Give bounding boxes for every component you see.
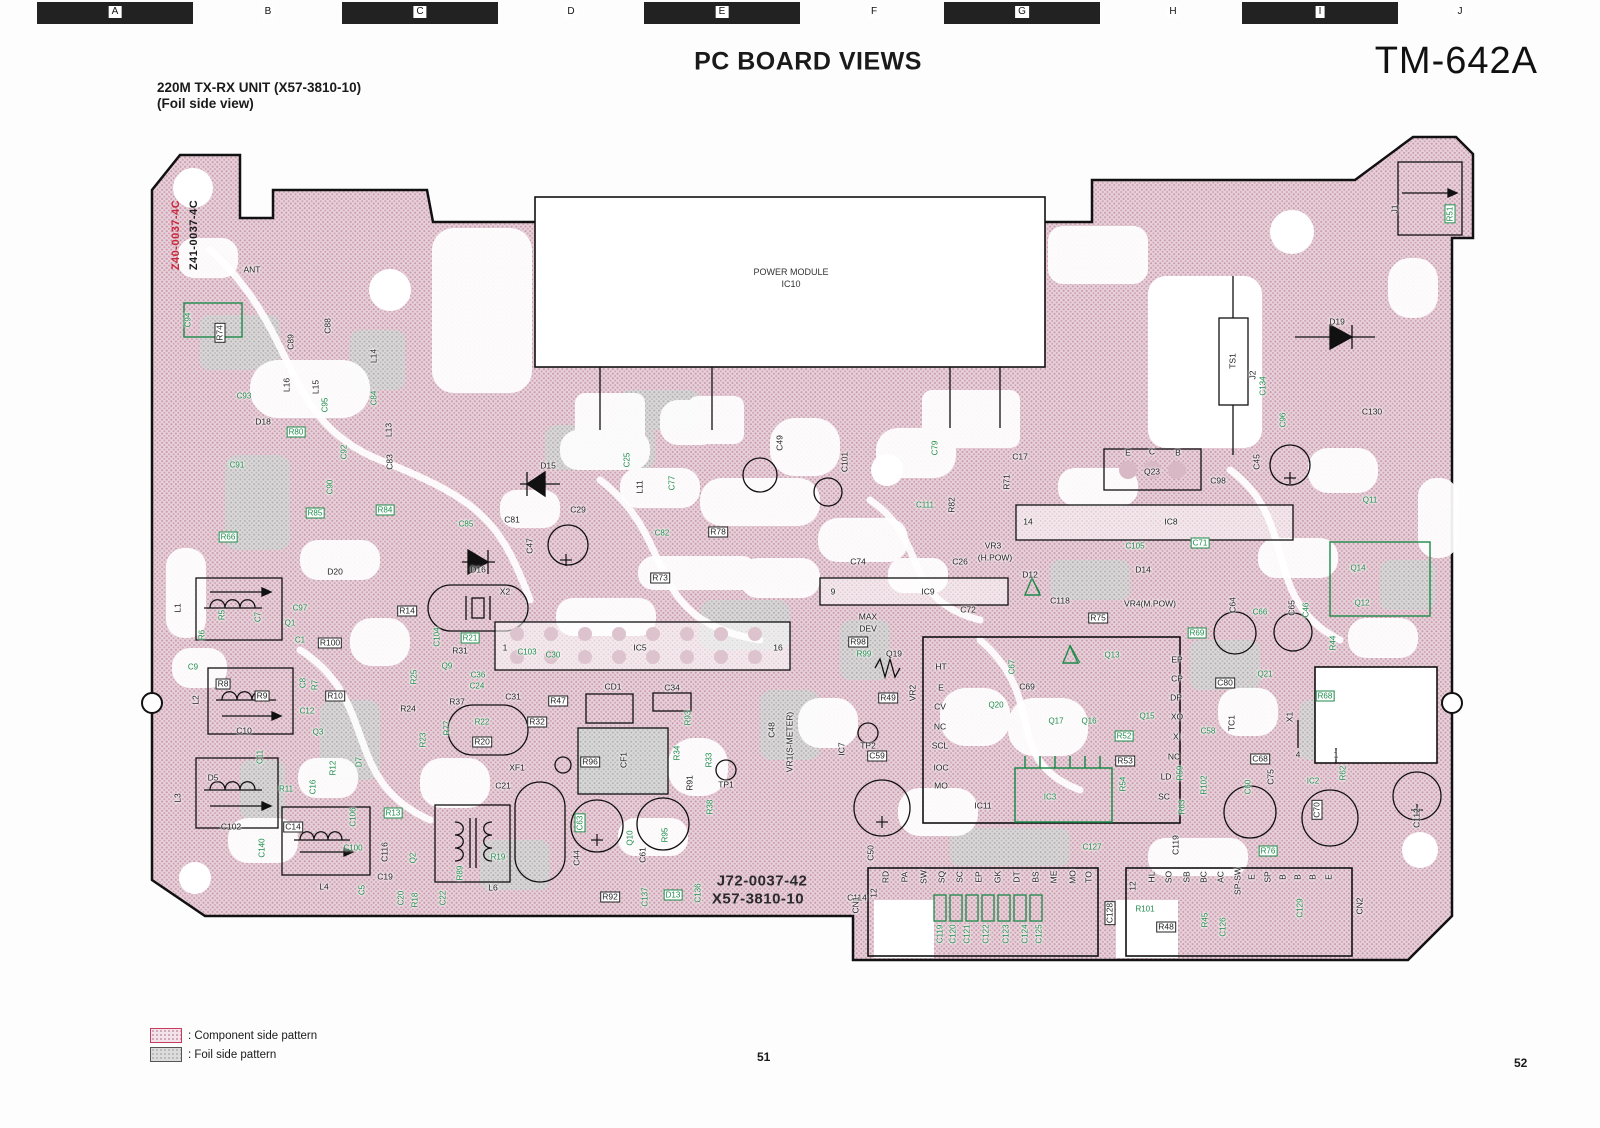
component-label: R14 xyxy=(397,606,417,617)
component-label: R11 xyxy=(279,785,293,794)
component-label: C67 xyxy=(1008,660,1017,675)
component-label: C1 xyxy=(295,636,305,645)
legend-component-side-label: : Component side pattern xyxy=(188,1030,317,1042)
component-label: IC11 xyxy=(974,802,991,811)
ts1-transformer xyxy=(1148,276,1262,455)
board-number-1: J72-0037-42 xyxy=(717,873,808,890)
page-number-right: 52 xyxy=(1514,1056,1527,1070)
component-label: XF1 xyxy=(509,764,525,773)
component-label: C88 xyxy=(324,318,333,334)
component-label: C65 xyxy=(1288,600,1297,616)
component-label: C74 xyxy=(850,558,866,567)
component-label: Q9 xyxy=(442,662,453,671)
component-label: C26 xyxy=(952,558,968,567)
component-label: R51 xyxy=(1445,205,1456,224)
component-label: 1 xyxy=(503,644,508,653)
component-label: C129 xyxy=(1296,898,1305,917)
component-label: R8 xyxy=(216,679,231,690)
component-label: J2 xyxy=(1249,371,1258,380)
legend: : Component side pattern : Foil side pat… xyxy=(150,1026,317,1064)
component-label: TC1 xyxy=(1228,715,1237,731)
component-label: C127 xyxy=(1082,843,1101,852)
component-label: C136 xyxy=(694,883,703,902)
component-label: 9 xyxy=(831,588,836,597)
component-label: IC8 xyxy=(1164,518,1177,527)
component-label: Q15 xyxy=(1139,712,1154,721)
component-label: C124 xyxy=(1021,924,1030,943)
component-label: 1 xyxy=(1334,751,1339,760)
component-label: R19 xyxy=(491,853,506,862)
component-label: C83 xyxy=(386,454,395,470)
component-label: R71 xyxy=(1003,474,1012,490)
component-label: SO xyxy=(1165,871,1174,883)
component-label: C25 xyxy=(623,453,632,468)
component-label: TP2 xyxy=(860,742,876,751)
component-label: CV xyxy=(934,703,946,712)
component-label: C19 xyxy=(377,873,393,882)
component-label: Q11 xyxy=(1363,496,1378,505)
component-label: NC xyxy=(1168,753,1180,762)
component-label: C36 xyxy=(471,671,486,680)
component-label: C16 xyxy=(309,780,318,795)
component-label: R45 xyxy=(1201,913,1210,928)
component-label: IOC xyxy=(933,764,948,773)
component-label: C24 xyxy=(470,682,485,691)
component-label: D19 xyxy=(1329,318,1345,327)
component-label: C75 xyxy=(1267,769,1276,785)
foil-side-pattern-swatch xyxy=(150,1047,182,1062)
component-label: B xyxy=(1309,874,1318,880)
component-label: PA xyxy=(901,872,910,883)
component-label: Q12 xyxy=(1354,599,1369,608)
component-label: R52 xyxy=(1115,731,1134,742)
component-label: R92 xyxy=(600,892,620,903)
component-label: C50 xyxy=(867,845,876,861)
component-label: C10 xyxy=(236,727,252,736)
component-label: B xyxy=(1175,449,1181,458)
component-label: R99 xyxy=(857,650,872,659)
component-label: D16 xyxy=(470,566,486,575)
component-label: R13 xyxy=(384,808,403,819)
component-label: C84 xyxy=(370,391,379,406)
component-label: R49 xyxy=(878,693,898,704)
component-label: 12 xyxy=(1129,881,1138,890)
component-label: R32 xyxy=(527,717,547,728)
component-label: R38 xyxy=(706,800,715,815)
component-label: ME xyxy=(1050,871,1059,884)
component-label: C89 xyxy=(287,334,296,350)
component-label: MO xyxy=(1069,870,1078,884)
component-label: C8 xyxy=(299,678,308,688)
component-label: C29 xyxy=(570,506,586,515)
power-module-ref: IC10 xyxy=(781,279,800,289)
component-label: CD1 xyxy=(604,683,621,692)
component-label: E xyxy=(1125,449,1131,458)
component-label: R25 xyxy=(410,670,419,685)
component-label: DEV xyxy=(859,625,876,634)
component-label: L14 xyxy=(370,349,379,363)
component-label: C134 xyxy=(1259,376,1268,395)
component-label: X1 xyxy=(1286,712,1295,722)
component-label: R54 xyxy=(1119,777,1128,792)
component-label: R48 xyxy=(1156,922,1176,933)
component-label: Q1 xyxy=(285,619,296,628)
component-label: X2 xyxy=(500,588,510,597)
component-label: C122 xyxy=(982,924,991,943)
component-label: C71 xyxy=(1191,538,1210,549)
component-label: C79 xyxy=(931,441,940,456)
component-label: CN1 xyxy=(852,896,861,913)
component-label: C97 xyxy=(293,604,308,613)
component-label: C45 xyxy=(1253,454,1262,470)
component-label: C12 xyxy=(300,707,315,716)
component-label: C112 xyxy=(1413,808,1422,828)
component-label: D12 xyxy=(1022,571,1038,580)
component-label: D7 xyxy=(355,757,364,767)
ic8 xyxy=(1016,505,1293,540)
component-label: Q13 xyxy=(1104,651,1119,660)
component-label: Q14 xyxy=(1350,564,1365,573)
component-label: R33 xyxy=(705,753,714,768)
component-label: C126 xyxy=(1219,917,1228,936)
component-label: 14 xyxy=(1023,518,1032,527)
ic2 xyxy=(1298,667,1437,763)
component-label: R68 xyxy=(1316,691,1335,702)
component-label: C9 xyxy=(188,663,198,672)
component-label: C58 xyxy=(1201,727,1216,736)
component-label: C49 xyxy=(776,435,785,451)
component-label: R76 xyxy=(1259,846,1278,857)
component-label: CP xyxy=(1171,675,1183,684)
component-label: C80 xyxy=(1215,678,1235,689)
component-label: R73 xyxy=(650,573,670,584)
component-label: L13 xyxy=(385,423,394,437)
component-side-pattern-swatch xyxy=(150,1028,182,1043)
component-label: C92 xyxy=(340,445,349,460)
component-label: C123 xyxy=(1002,924,1011,943)
component-label: C22 xyxy=(439,891,448,906)
component-label: R100 xyxy=(318,638,342,649)
component-label: E xyxy=(1325,874,1334,880)
component-label: D18 xyxy=(255,418,271,427)
component-label: C11 xyxy=(256,750,265,764)
component-label: C93 xyxy=(237,392,252,401)
component-label: L11 xyxy=(636,480,645,494)
component-label: R91 xyxy=(686,775,695,791)
component-label: C116 xyxy=(381,842,390,862)
component-label: R80 xyxy=(287,427,306,438)
component-label: E xyxy=(1248,874,1257,880)
component-label: C111 xyxy=(916,501,934,510)
component-label: R24 xyxy=(400,705,416,714)
component-label: D13 xyxy=(664,890,683,901)
component-label: SC xyxy=(956,871,965,883)
component-label: Q21 xyxy=(1257,670,1272,679)
component-label: Q10 xyxy=(626,830,635,845)
component-label: VR3 xyxy=(985,542,1002,551)
component-label: TS1 xyxy=(1229,353,1238,369)
component-label: Q17 xyxy=(1048,717,1063,726)
component-label: R22 xyxy=(475,718,490,727)
component-label: C118 xyxy=(1050,597,1070,606)
component-label: R96 xyxy=(580,757,600,768)
component-label: R66 xyxy=(219,532,238,543)
component-label: R7 xyxy=(311,680,320,690)
page: ABCDEFGHIJ 1234567 PC BOARD VIEWS TM-642… xyxy=(0,0,1600,1128)
component-label: SW xyxy=(920,870,929,884)
component-label: C119 xyxy=(936,925,945,944)
component-label: C125 xyxy=(1035,924,1044,943)
component-label: EP xyxy=(1171,656,1182,665)
component-label: R93 xyxy=(684,711,693,726)
component-label: C59 xyxy=(867,751,887,762)
component-label: R84 xyxy=(376,505,395,516)
component-label: B xyxy=(1294,874,1303,880)
component-label: C119 xyxy=(1172,835,1181,855)
component-label: MAX xyxy=(859,613,877,622)
component-label: Q3 xyxy=(313,728,324,737)
component-label: C34 xyxy=(664,684,680,693)
component-label: C63 xyxy=(575,814,586,833)
component-label: R95 xyxy=(661,828,670,843)
component-label: TO xyxy=(1085,871,1094,883)
component-label: IC5 xyxy=(633,644,646,653)
component-label: C82 xyxy=(655,529,670,538)
component-label: C100 xyxy=(343,844,362,853)
component-label: R44 xyxy=(1329,636,1338,651)
legend-component-side: : Component side pattern xyxy=(150,1026,317,1045)
component-label: R85 xyxy=(306,508,325,519)
component-label: R59 xyxy=(1176,766,1185,781)
component-label: BS xyxy=(1032,871,1041,882)
legend-foil-side: : Foil side pattern xyxy=(150,1045,317,1064)
component-label: C69 xyxy=(1019,683,1035,692)
component-label: L16 xyxy=(283,378,292,392)
ic9 xyxy=(820,578,1008,605)
component-label: B xyxy=(1279,874,1288,880)
component-label: C47 xyxy=(526,538,535,554)
component-label: R12 xyxy=(329,761,338,776)
component-label: C95 xyxy=(321,398,330,413)
page-number-left: 51 xyxy=(757,1050,770,1064)
component-label: L3 xyxy=(174,793,183,802)
component-label: R31 xyxy=(452,647,468,656)
component-label: C130 xyxy=(1362,408,1382,417)
component-label: R18 xyxy=(411,893,420,908)
component-label: RD xyxy=(882,871,891,883)
component-label: L15 xyxy=(312,380,321,394)
component-label: VR1(S-METER) xyxy=(786,712,795,772)
component-label: TP1 xyxy=(718,781,734,790)
component-label: C91 xyxy=(230,461,245,470)
component-label: VR4(M.POW) xyxy=(1124,600,1176,609)
component-label: IC7 xyxy=(838,742,847,755)
component-label: C31 xyxy=(505,693,521,702)
component-label: DT xyxy=(1013,871,1022,882)
component-label: C103 xyxy=(517,648,536,657)
component-label: R77 xyxy=(443,721,452,736)
component-label: XI xyxy=(1173,733,1181,742)
component-label: HT xyxy=(935,663,946,672)
component-label: C64 xyxy=(1229,597,1238,613)
component-label: HL xyxy=(1148,872,1157,883)
component-label: C68 xyxy=(1250,754,1270,765)
component-label: C81 xyxy=(504,516,520,525)
component-label: C137 xyxy=(641,887,650,906)
component-label: VR2 xyxy=(909,685,918,702)
component-label: C5 xyxy=(358,885,367,895)
component-label: C121 xyxy=(963,924,972,943)
component-label: R53 xyxy=(1115,756,1135,767)
component-label: L2 xyxy=(192,695,201,704)
component-label: SB xyxy=(1183,871,1192,882)
component-label: C90 xyxy=(326,480,335,495)
component-label: AC xyxy=(1217,871,1226,883)
component-label: R10 xyxy=(325,691,345,702)
component-label: 12 xyxy=(870,888,879,897)
component-label: R82 xyxy=(948,497,957,513)
component-label: D15 xyxy=(540,462,556,471)
component-label: L1 xyxy=(174,603,183,612)
component-label: C20 xyxy=(397,891,406,906)
component-label: R78 xyxy=(708,527,728,538)
legend-foil-side-label: : Foil side pattern xyxy=(188,1049,276,1061)
component-label: MO xyxy=(934,782,948,791)
component-label: XO xyxy=(1171,713,1183,722)
component-label: R75 xyxy=(1088,613,1108,624)
component-label: Q19 xyxy=(886,650,902,659)
component-label: C66 xyxy=(1253,608,1268,617)
component-label: C61 xyxy=(639,847,648,863)
component-label: R74 xyxy=(215,323,226,343)
component-label: C xyxy=(1149,448,1155,457)
component-label: C44 xyxy=(573,850,582,866)
component-label: LD xyxy=(1161,773,1172,782)
component-label: R62 xyxy=(1339,766,1348,781)
component-label: 4 xyxy=(1296,751,1301,760)
component-label: C7 xyxy=(254,612,263,622)
component-label: C94 xyxy=(184,313,193,328)
component-label: C48 xyxy=(768,722,777,738)
component-label: SCL xyxy=(932,742,949,751)
component-label: ANT xyxy=(244,266,261,275)
component-label: D14 xyxy=(1135,566,1151,575)
component-label: R5 xyxy=(218,610,227,620)
component-label: R20 xyxy=(472,737,492,748)
component-label: C30 xyxy=(546,651,561,660)
component-label: R98 xyxy=(848,637,868,648)
component-label: C101 xyxy=(841,452,850,472)
component-label: D20 xyxy=(327,568,343,577)
component-label: C60 xyxy=(1244,780,1253,795)
component-label: E xyxy=(938,684,944,693)
pcb-board: Z40-0037-4C Z41-0037-4C J72-0037-42 X57-… xyxy=(0,0,1600,1128)
component-label: CN2 xyxy=(1356,897,1365,914)
component-label: R101 xyxy=(1135,905,1154,914)
component-label: C140 xyxy=(258,838,267,857)
component-label: R9 xyxy=(255,691,270,702)
component-label: 16 xyxy=(773,644,782,653)
component-label: SC xyxy=(1158,793,1170,802)
component-label: R69 xyxy=(1188,628,1207,639)
component-label: DP xyxy=(1170,694,1182,703)
component-label: C70 xyxy=(1312,800,1323,820)
component-label: C96 xyxy=(1279,413,1288,428)
component-label: R63 xyxy=(1178,800,1187,815)
component-label: NC xyxy=(934,723,946,732)
component-label: C46 xyxy=(1302,603,1311,618)
component-label: IC2 xyxy=(1307,777,1319,786)
component-label: J1 xyxy=(1391,205,1400,214)
component-label: C128 xyxy=(1105,901,1116,925)
component-label: (H.POW) xyxy=(978,554,1012,563)
component-label: GK xyxy=(994,871,1003,883)
component-label: C104 xyxy=(433,627,442,646)
component-label: C106 xyxy=(349,807,358,826)
component-label: IC3 xyxy=(1044,793,1056,802)
component-label: SQ xyxy=(938,871,947,883)
component-label: R47 xyxy=(548,696,568,707)
component-label: R34 xyxy=(673,746,682,761)
part-number-red: Z40-0037-4C xyxy=(170,200,182,270)
component-label: C85 xyxy=(459,520,474,529)
power-module-label: POWER MODULE xyxy=(753,267,828,277)
component-label: R89 xyxy=(456,866,465,881)
component-label: R6 xyxy=(198,630,207,640)
component-label: BC xyxy=(1200,871,1209,883)
component-label: C102 xyxy=(221,823,241,832)
board-number-2: X57-3810-10 xyxy=(712,891,804,908)
component-label: R102 xyxy=(1200,775,1209,794)
component-label: C17 xyxy=(1012,453,1028,462)
component-label: Q23 xyxy=(1144,468,1160,477)
component-label: EP xyxy=(975,871,984,882)
component-label: R23 xyxy=(419,733,428,748)
component-label: C72 xyxy=(960,606,976,615)
component-label: C21 xyxy=(495,782,511,791)
component-label: SP-SW xyxy=(1234,867,1243,895)
component-label: C77 xyxy=(668,476,677,491)
component-label: IC9 xyxy=(921,588,934,597)
component-label: Q20 xyxy=(988,701,1003,710)
component-label: L4 xyxy=(319,883,328,892)
component-label: D5 xyxy=(208,774,219,783)
component-label: R21 xyxy=(461,633,480,644)
component-label: R37 xyxy=(449,698,465,707)
component-label: SP xyxy=(1264,871,1273,882)
part-number-black: Z41-0037-4C xyxy=(188,200,200,270)
component-label: C120 xyxy=(949,924,958,943)
component-label: L6 xyxy=(488,884,497,893)
component-label: C105 xyxy=(1125,542,1144,551)
component-label: C14 xyxy=(283,822,303,833)
component-label: Q2 xyxy=(409,853,418,864)
component-label: CF1 xyxy=(620,752,629,768)
component-label: C98 xyxy=(1210,477,1226,486)
component-label: Q16 xyxy=(1081,717,1096,726)
